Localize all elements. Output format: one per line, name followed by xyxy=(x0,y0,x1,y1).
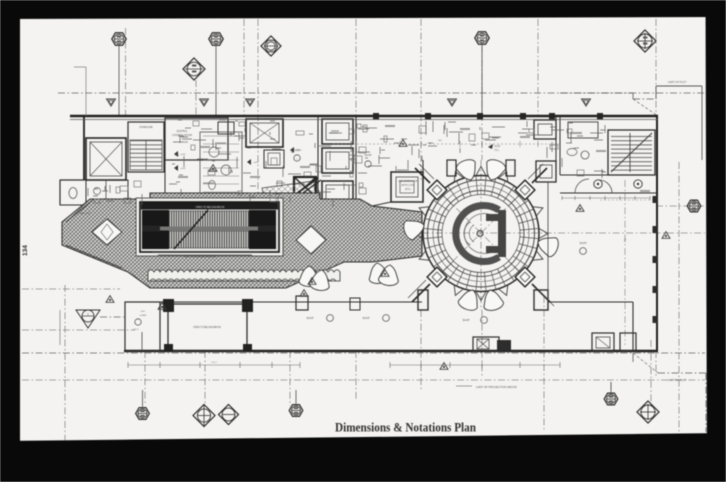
svg-text:LIMIT OF CONCRETE ABOVE: LIMIT OF CONCRETE ABOVE xyxy=(184,256,216,259)
svg-text:SHOP: SHOP xyxy=(362,316,370,320)
svg-text:134: 134 xyxy=(22,245,29,256)
svg-text:127.5: 127.5 xyxy=(133,329,139,331)
svg-text:SHOP: SHOP xyxy=(364,153,372,157)
svg-text:STAIRCASE: STAIRCASE xyxy=(139,126,153,129)
svg-text:SHOP: SHOP xyxy=(462,318,470,322)
svg-text:LIMIT OF PLOT: LIMIT OF PLOT xyxy=(668,378,687,382)
svg-text:C: C xyxy=(87,312,89,316)
svg-text:#22 WORKSHOP: #22 WORKSHOP xyxy=(399,180,418,183)
svg-text:WITH C.R.P: WITH C.R.P xyxy=(401,184,415,187)
svg-text:CONTROL ROOM: CONTROL ROOM xyxy=(172,134,192,137)
svg-text:+4.87: +4.87 xyxy=(180,154,186,156)
svg-text:OPEN TO BELOW/ABOVE: OPEN TO BELOW/ABOVE xyxy=(196,206,225,209)
svg-text:+4.87: +4.87 xyxy=(253,162,259,164)
svg-text:+8.30: +8.30 xyxy=(494,145,501,148)
svg-text:Dimensions & Notations Plan: Dimensions & Notations Plan xyxy=(335,421,476,435)
svg-text:340: 340 xyxy=(184,141,189,144)
svg-text:LIFT: LIFT xyxy=(141,311,146,313)
svg-text:CENTRAL: CENTRAL xyxy=(176,130,188,133)
svg-text:+4.87: +4.87 xyxy=(180,168,186,170)
svg-text:SHOP: SHOP xyxy=(292,148,300,152)
svg-text:SHOP: SHOP xyxy=(579,241,587,245)
svg-text:SHOP: SHOP xyxy=(306,316,314,320)
svg-text:BALCONY: BALCONY xyxy=(80,212,91,215)
svg-text:LIMIT OF PLOT: LIMIT OF PLOT xyxy=(668,80,687,84)
svg-text:(BTL): (BTL) xyxy=(405,188,411,191)
svg-text:P.C.: P.C. xyxy=(624,237,627,242)
svg-text:LOBBY: LOBBY xyxy=(139,315,147,317)
svg-text:272.2: 272.2 xyxy=(211,362,217,364)
svg-text:OPEN TO BELOW/ABOVE: OPEN TO BELOW/ABOVE xyxy=(193,326,221,329)
svg-text:T.F.L.: T.F.L. xyxy=(494,149,500,152)
svg-text:LIMIT OF PROJECTION ABOVE: LIMIT OF PROJECTION ABOVE xyxy=(476,385,517,389)
